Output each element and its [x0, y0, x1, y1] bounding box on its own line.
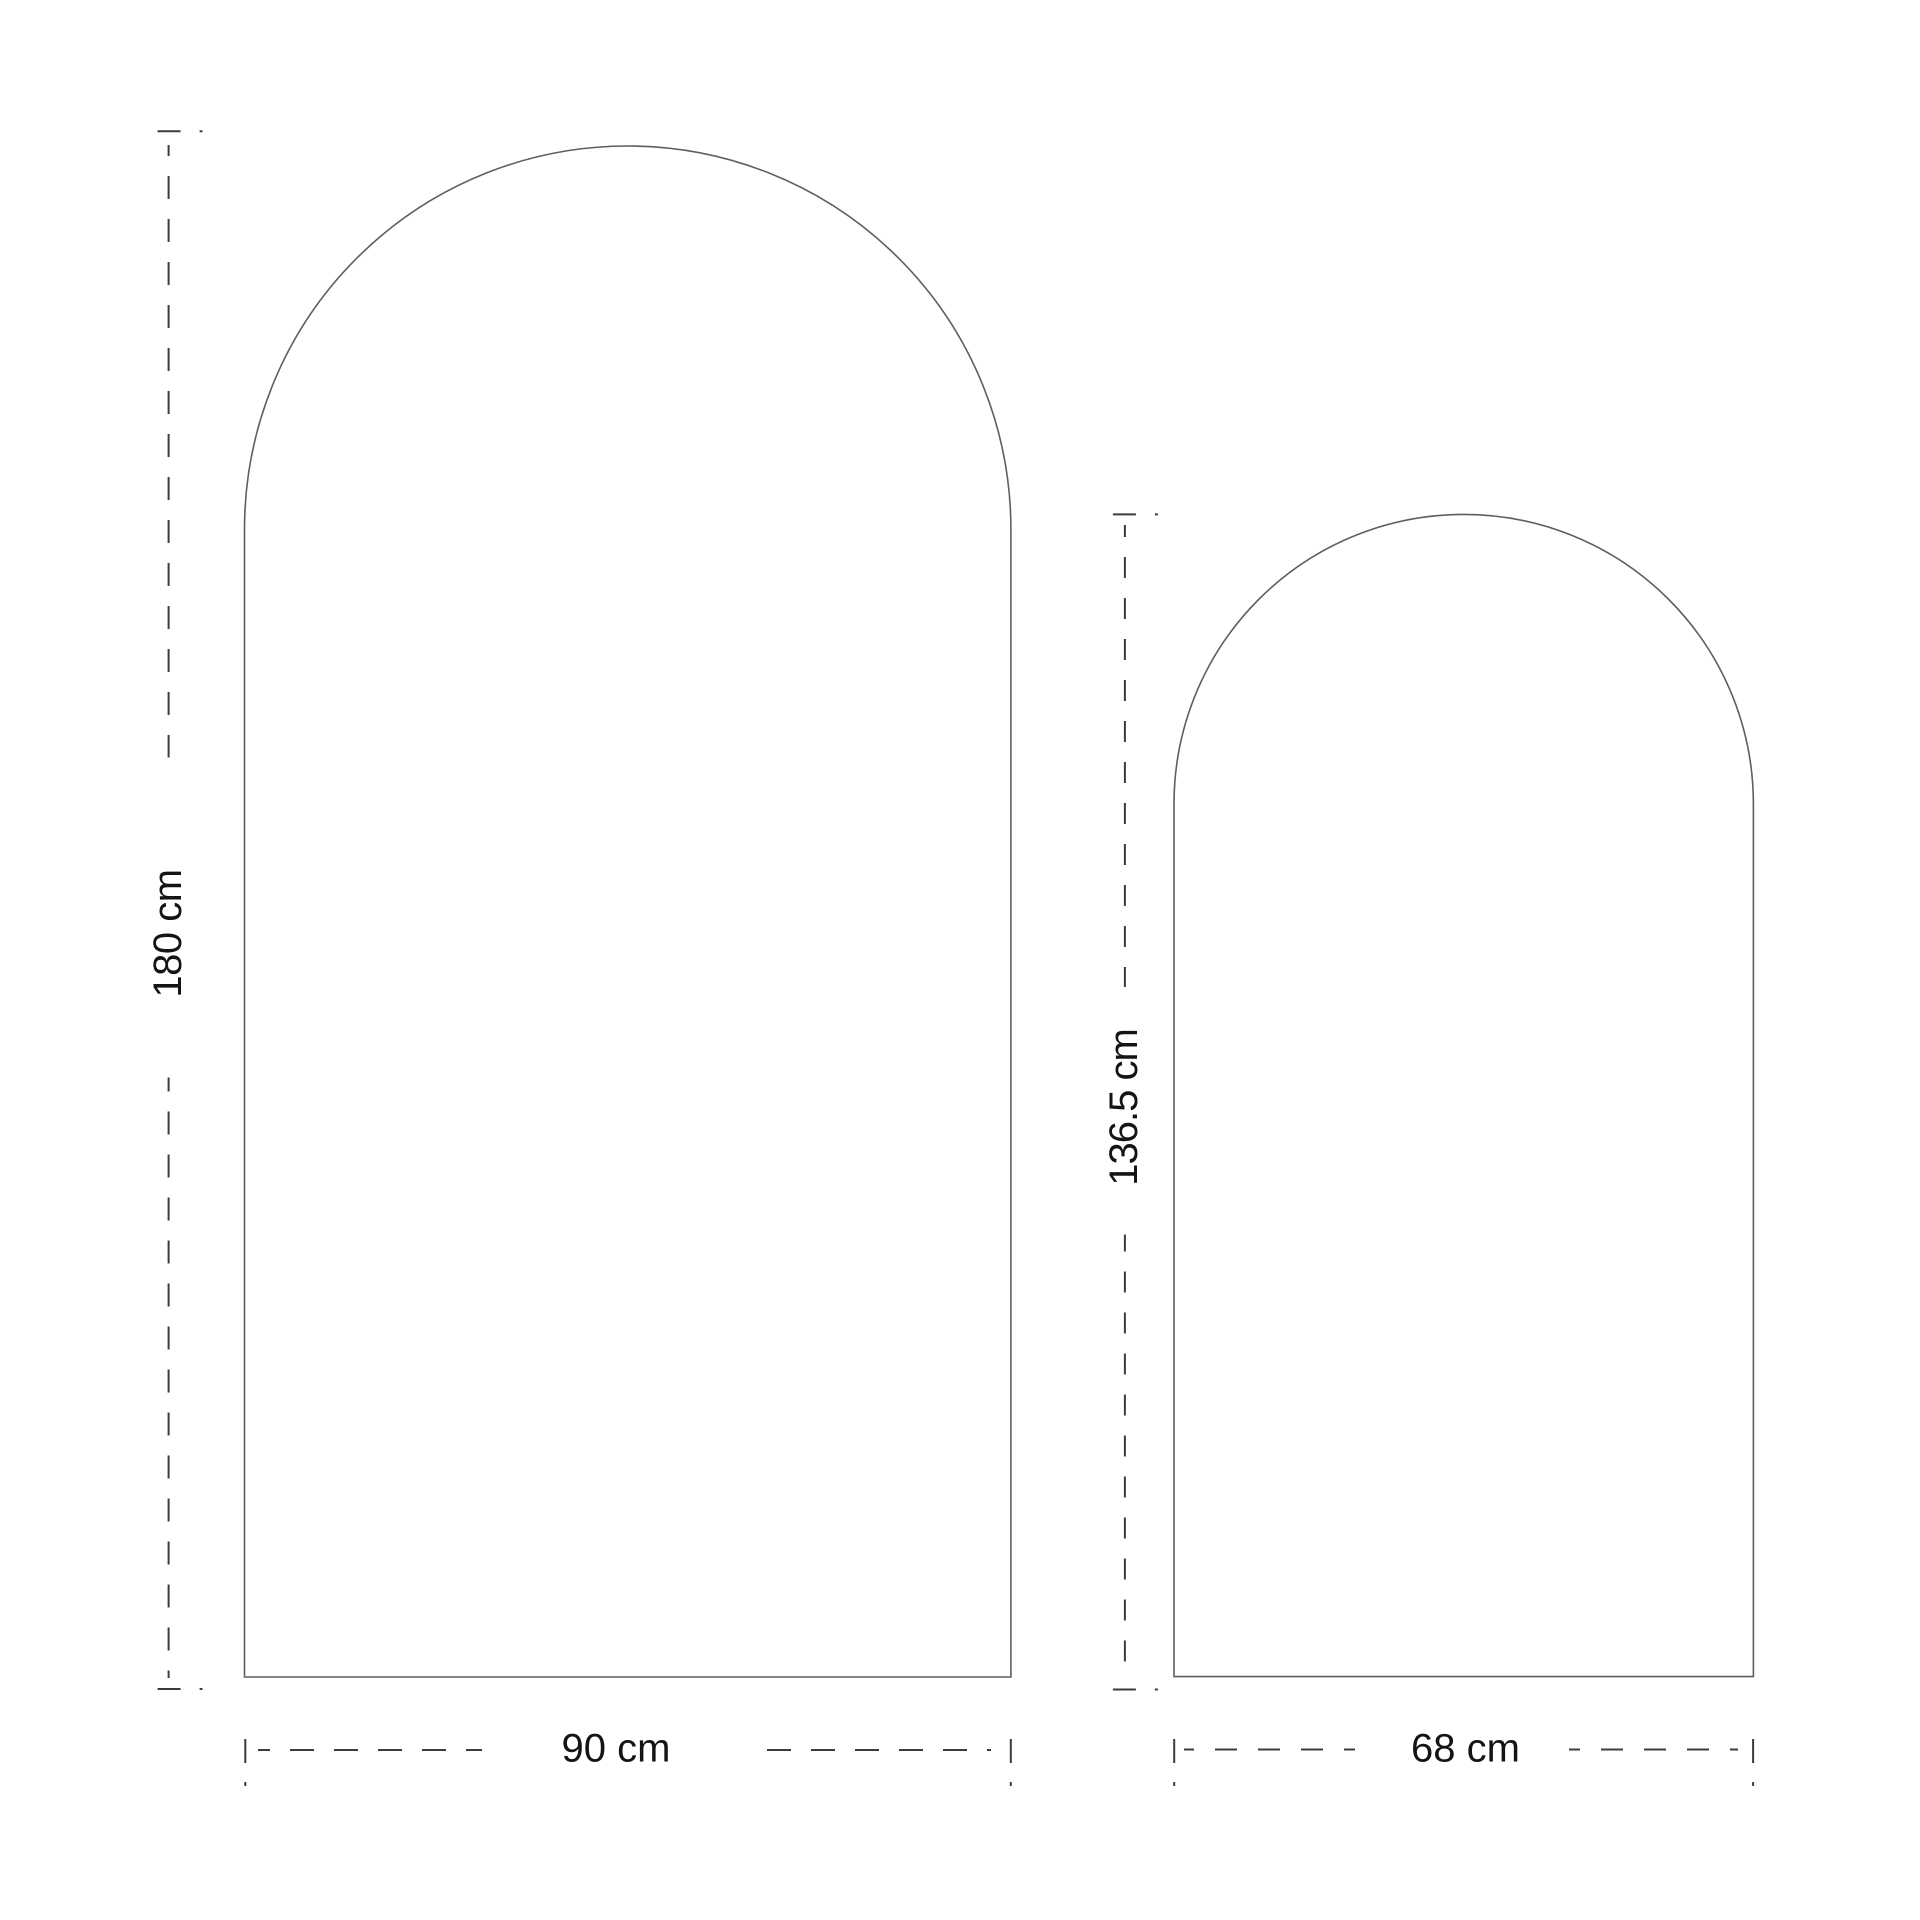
- svg-text:180 cm: 180 cm: [146, 869, 190, 997]
- svg-text:90 cm: 90 cm: [562, 1727, 671, 1771]
- svg-text:136.5 cm: 136.5 cm: [1102, 1029, 1146, 1186]
- svg-text:68 cm: 68 cm: [1411, 1727, 1520, 1771]
